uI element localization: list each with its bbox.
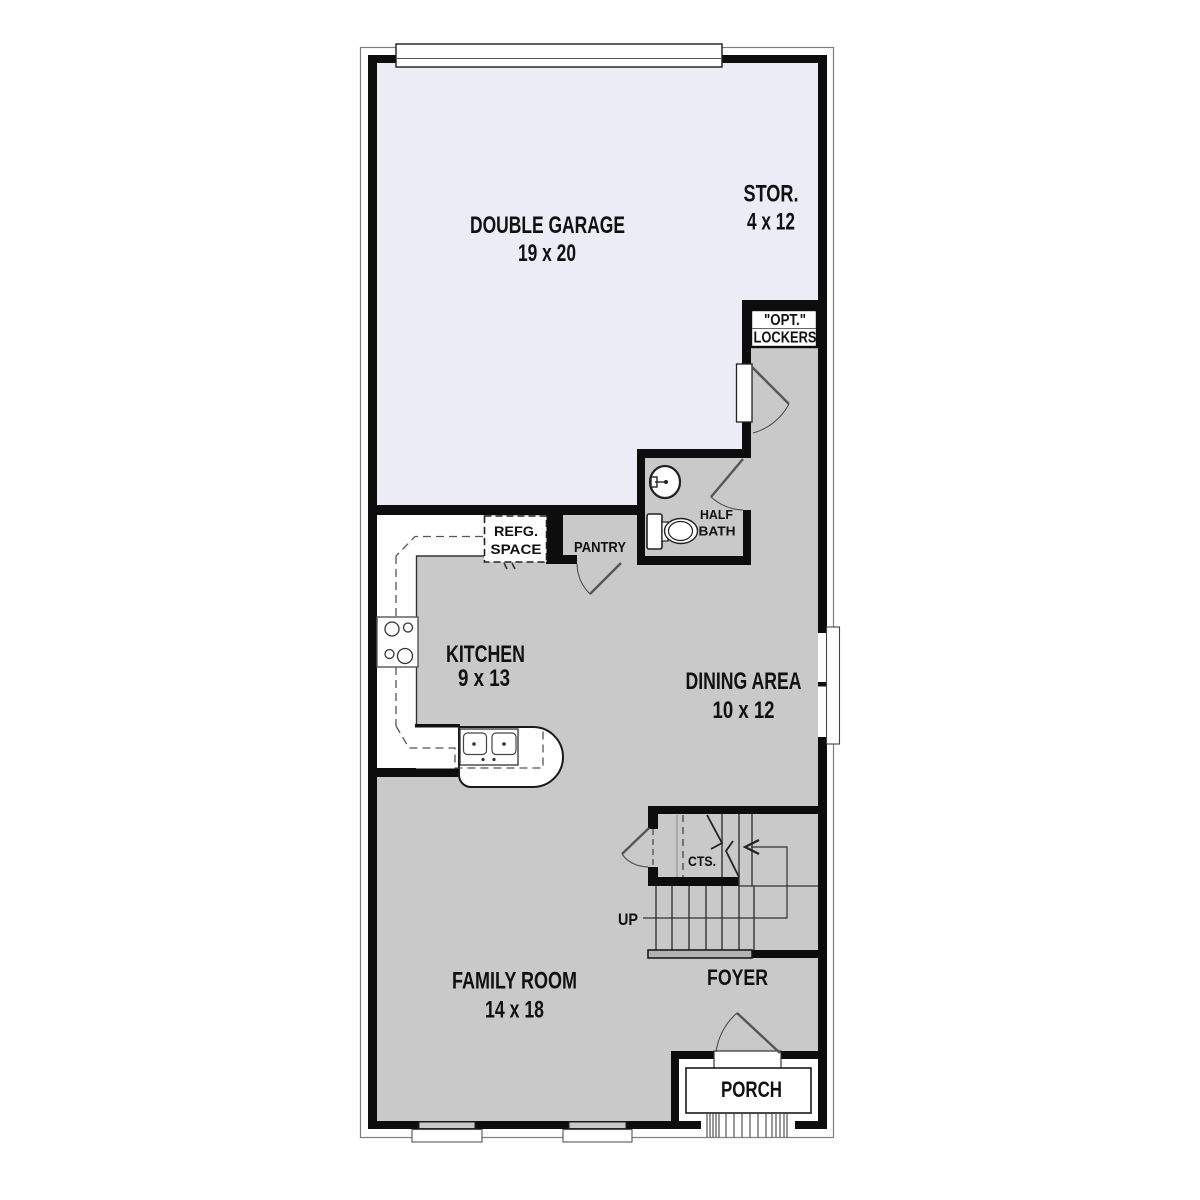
svg-text:CTS.: CTS. (688, 853, 716, 869)
svg-text:FOYER: FOYER (707, 965, 768, 990)
svg-text:HALF: HALF (700, 507, 733, 522)
svg-text:DINING AREA: DINING AREA (686, 668, 802, 695)
svg-text:REFG.: REFG. (494, 523, 538, 539)
svg-text:19 x 20: 19 x 20 (518, 240, 576, 267)
svg-text:LOCKERS: LOCKERS (754, 330, 817, 347)
svg-text:PORCH: PORCH (721, 1077, 782, 1102)
svg-text:"OPT.": "OPT." (764, 312, 806, 329)
svg-text:DOUBLE GARAGE: DOUBLE GARAGE (470, 212, 625, 239)
svg-text:BATH: BATH (699, 524, 736, 539)
svg-text:UP: UP (618, 910, 638, 929)
svg-text:9 x 13: 9 x 13 (458, 665, 510, 692)
svg-text:FAMILY ROOM: FAMILY ROOM (452, 968, 577, 995)
svg-text:14 x 18: 14 x 18 (485, 997, 544, 1024)
svg-text:PANTRY: PANTRY (574, 540, 626, 556)
svg-text:SPACE: SPACE (491, 541, 542, 557)
svg-text:KITCHEN: KITCHEN (446, 641, 525, 668)
svg-text:STOR.: STOR. (744, 181, 799, 208)
svg-text:4 x 12: 4 x 12 (747, 209, 795, 236)
svg-text:10 x 12: 10 x 12 (713, 697, 775, 724)
